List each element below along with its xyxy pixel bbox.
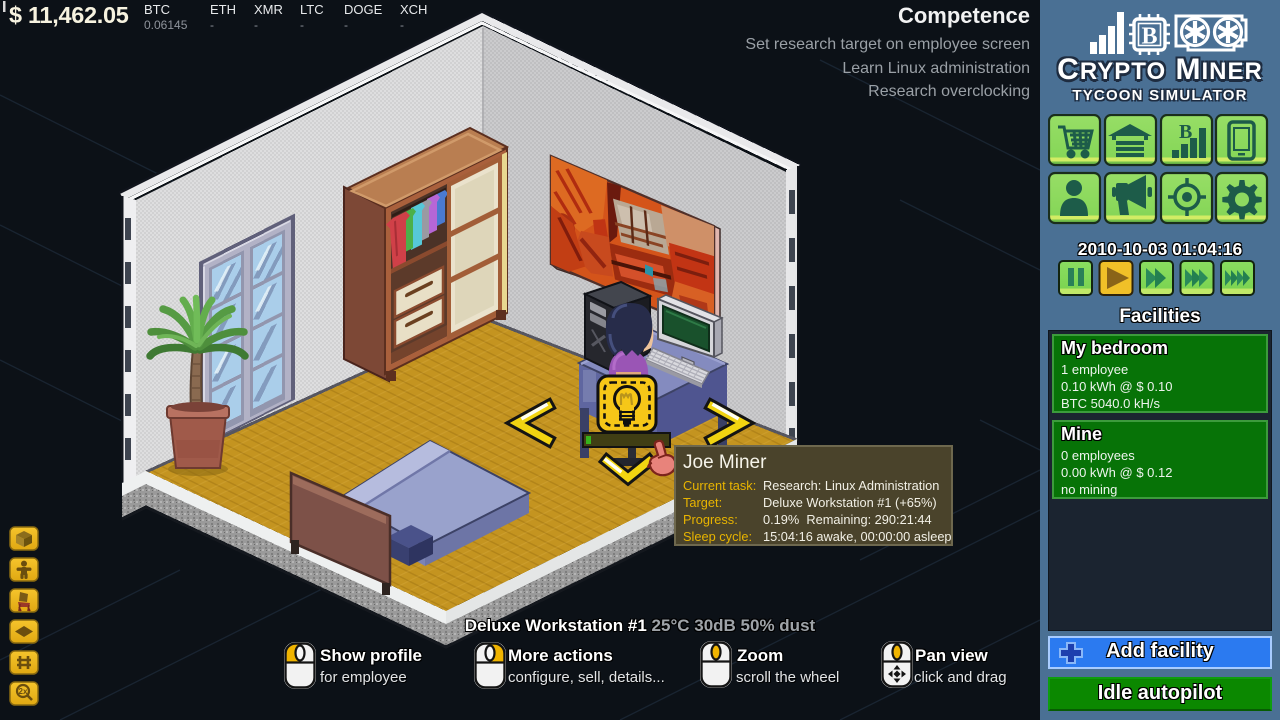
svg-text:B: B [1179,121,1192,143]
svg-text:2x: 2x [19,687,28,696]
svg-text:B: B [1141,24,1157,50]
